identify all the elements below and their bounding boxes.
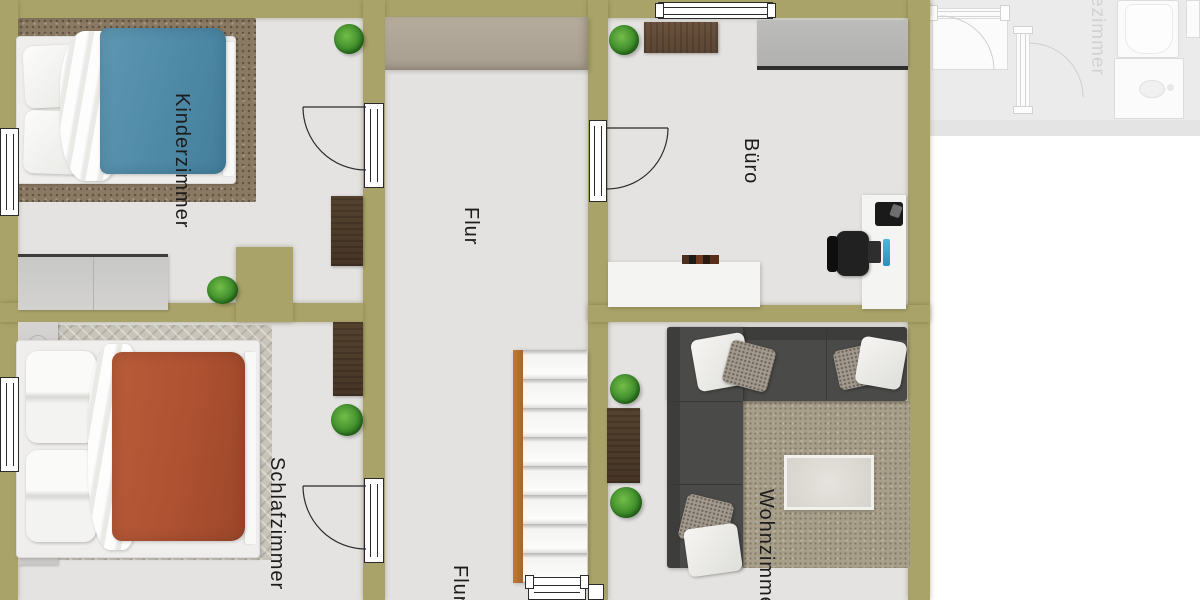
sofa-seam — [670, 484, 742, 485]
plant — [610, 487, 642, 518]
sofa-seam — [670, 401, 742, 402]
schlaf-bed-pillow — [26, 450, 96, 542]
sofa-pillow-white — [683, 522, 743, 577]
window-buero — [658, 2, 773, 19]
door-cap — [1013, 26, 1033, 34]
schlaf-bed-blanket — [112, 352, 245, 541]
staircase — [513, 350, 588, 583]
washbasin-tap — [1167, 84, 1174, 91]
schlaf-wardrobe — [333, 322, 363, 396]
plant — [207, 276, 238, 304]
window-glass-lines — [6, 134, 14, 210]
wall-chimney-block — [236, 247, 293, 322]
adjacent-window-bar — [932, 8, 1008, 19]
room-label-kinderzimmer: Kinderzimmer — [170, 93, 193, 228]
window-kinderzimmer — [0, 128, 19, 216]
window-glass-lines — [936, 11, 1004, 17]
adjacent-door-jamb — [1016, 30, 1030, 110]
door-leaf-lines — [594, 126, 602, 196]
wall-right — [908, 0, 930, 600]
room-label-flur-upper: Flur — [459, 207, 482, 245]
door-kinderzimmer — [364, 103, 384, 188]
adjacent-plan-wall-faded — [928, 120, 1200, 136]
window-cap — [1000, 5, 1010, 21]
flur-wardrobe — [385, 17, 588, 70]
room-label-adjacent-fragment: ezimmer — [1086, 0, 1108, 76]
window-glass-lines — [6, 383, 14, 466]
door-fragment — [588, 584, 604, 600]
kinder-bed-blanket — [100, 28, 226, 174]
bathtub — [1117, 0, 1179, 58]
plant — [610, 374, 640, 404]
wall-flur-right — [588, 0, 608, 600]
plant — [334, 24, 364, 54]
washbasin-bowl — [1139, 80, 1165, 98]
buero-office-chair — [836, 231, 869, 276]
door-leaf-lines — [370, 484, 378, 557]
door-buero — [589, 120, 607, 202]
plant — [331, 404, 363, 436]
door-leaf-lines — [1020, 34, 1026, 106]
plant — [609, 25, 639, 55]
room-label-schlafzimmer: Schlafzimmer — [265, 457, 288, 590]
buero-cabinet-edge — [757, 66, 908, 70]
buero-books — [682, 255, 719, 264]
room-label-wohnzimmer: Wohnzimmer — [754, 489, 777, 600]
floorplan-canvas: Kinderzimmer Schlafzimmer Flur Flur Büro… — [0, 0, 1200, 600]
window-cap — [525, 575, 534, 589]
window-glass-lines — [664, 7, 767, 15]
window-schlafzimmer — [0, 377, 19, 472]
schlaf-bed-footboard — [245, 352, 256, 544]
buero-monitor — [883, 239, 890, 266]
door-leaf-lines — [370, 109, 378, 182]
staircase-steps — [523, 350, 588, 583]
buero-office-chair-back — [827, 236, 838, 272]
buero-desk — [644, 22, 718, 53]
wohn-shelf — [607, 408, 640, 483]
buero-sideboard — [608, 262, 760, 307]
window-cap — [767, 3, 776, 18]
staircase-stringer — [513, 350, 523, 583]
sofa-pillow-white — [854, 335, 908, 390]
room-label-buero: Büro — [739, 138, 762, 184]
window-staircase — [528, 577, 586, 600]
sofa-seam — [826, 330, 827, 400]
kinder-desk — [331, 196, 363, 266]
wall-top — [0, 0, 930, 18]
schlaf-bed-pillow — [26, 351, 96, 443]
window-glass-lines — [534, 585, 580, 593]
kinder-dresser — [18, 254, 168, 310]
adjacent-fixture — [1186, 0, 1200, 38]
window-cap — [580, 575, 589, 589]
door-schlafzimmer — [364, 478, 384, 563]
wohn-coffee-table — [784, 455, 874, 510]
buero-cabinet — [757, 20, 908, 67]
buero-printer — [875, 202, 903, 226]
bathtub-basin — [1125, 4, 1173, 54]
window-cap — [655, 3, 664, 18]
buero-keyboard — [868, 241, 881, 263]
door-cap — [1013, 106, 1033, 114]
room-label-flur-lower: Flur — [448, 565, 471, 600]
